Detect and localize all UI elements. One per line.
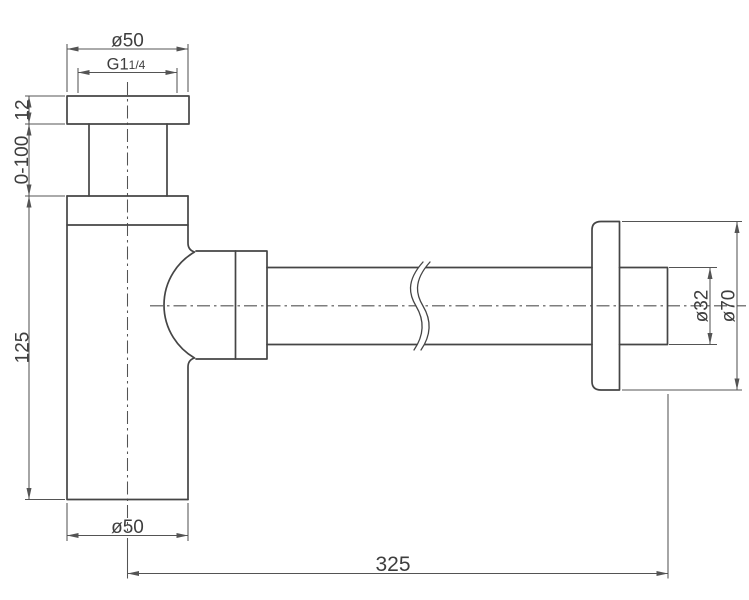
dim-adjustment-range-label: 0-100 — [12, 136, 33, 185]
dim-wall-flange-diameter: ø70 — [622, 222, 742, 391]
dim-thread-label: G11/4 — [107, 56, 146, 74]
cup-right-wall-with-outlet-dome — [164, 196, 194, 500]
dim-flange-thickness: 12 — [13, 96, 66, 124]
part-outline — [67, 96, 668, 500]
dim-bottom-diameter-label: ø50 — [111, 517, 144, 538]
arrowhead-up — [27, 124, 32, 136]
dim-pipe-diameter-label: ø32 — [692, 290, 713, 323]
arrowhead-up — [27, 196, 32, 208]
arrowhead-left — [78, 70, 90, 75]
dim-body-height: 125 — [13, 196, 66, 500]
arrowhead-down — [708, 333, 713, 345]
arrowhead-left — [67, 533, 79, 538]
dim-flange-thickness-label: 12 — [13, 99, 34, 120]
arrowhead-up — [708, 268, 713, 280]
dim-length-label: 325 — [375, 553, 410, 576]
arrowhead-down — [27, 185, 32, 197]
arrowhead-up — [735, 222, 740, 234]
dim-top-diameter-label: ø50 — [111, 31, 144, 52]
dim-length: 325 — [128, 394, 669, 579]
centerlines — [128, 82, 747, 531]
arrowhead-right — [177, 533, 189, 538]
arrowhead-right — [177, 47, 189, 52]
drawing-sheet: ø50 G11/4 12 0-100 125 — [0, 0, 749, 600]
dim-wall-flange-diameter-label: ø70 — [719, 290, 740, 323]
arrowhead-down — [27, 488, 32, 500]
arrowhead-left — [67, 47, 79, 52]
arrowhead-down — [735, 379, 740, 391]
compression-nut-outline — [236, 251, 268, 359]
dim-adjustment-range: 0-100 — [12, 124, 65, 196]
arrowhead-right — [657, 571, 669, 576]
arrowhead-left — [128, 571, 140, 576]
technical-drawing: ø50 G11/4 12 0-100 125 — [0, 0, 749, 600]
arrowhead-right — [166, 70, 178, 75]
dim-body-height-label: 125 — [13, 332, 34, 364]
